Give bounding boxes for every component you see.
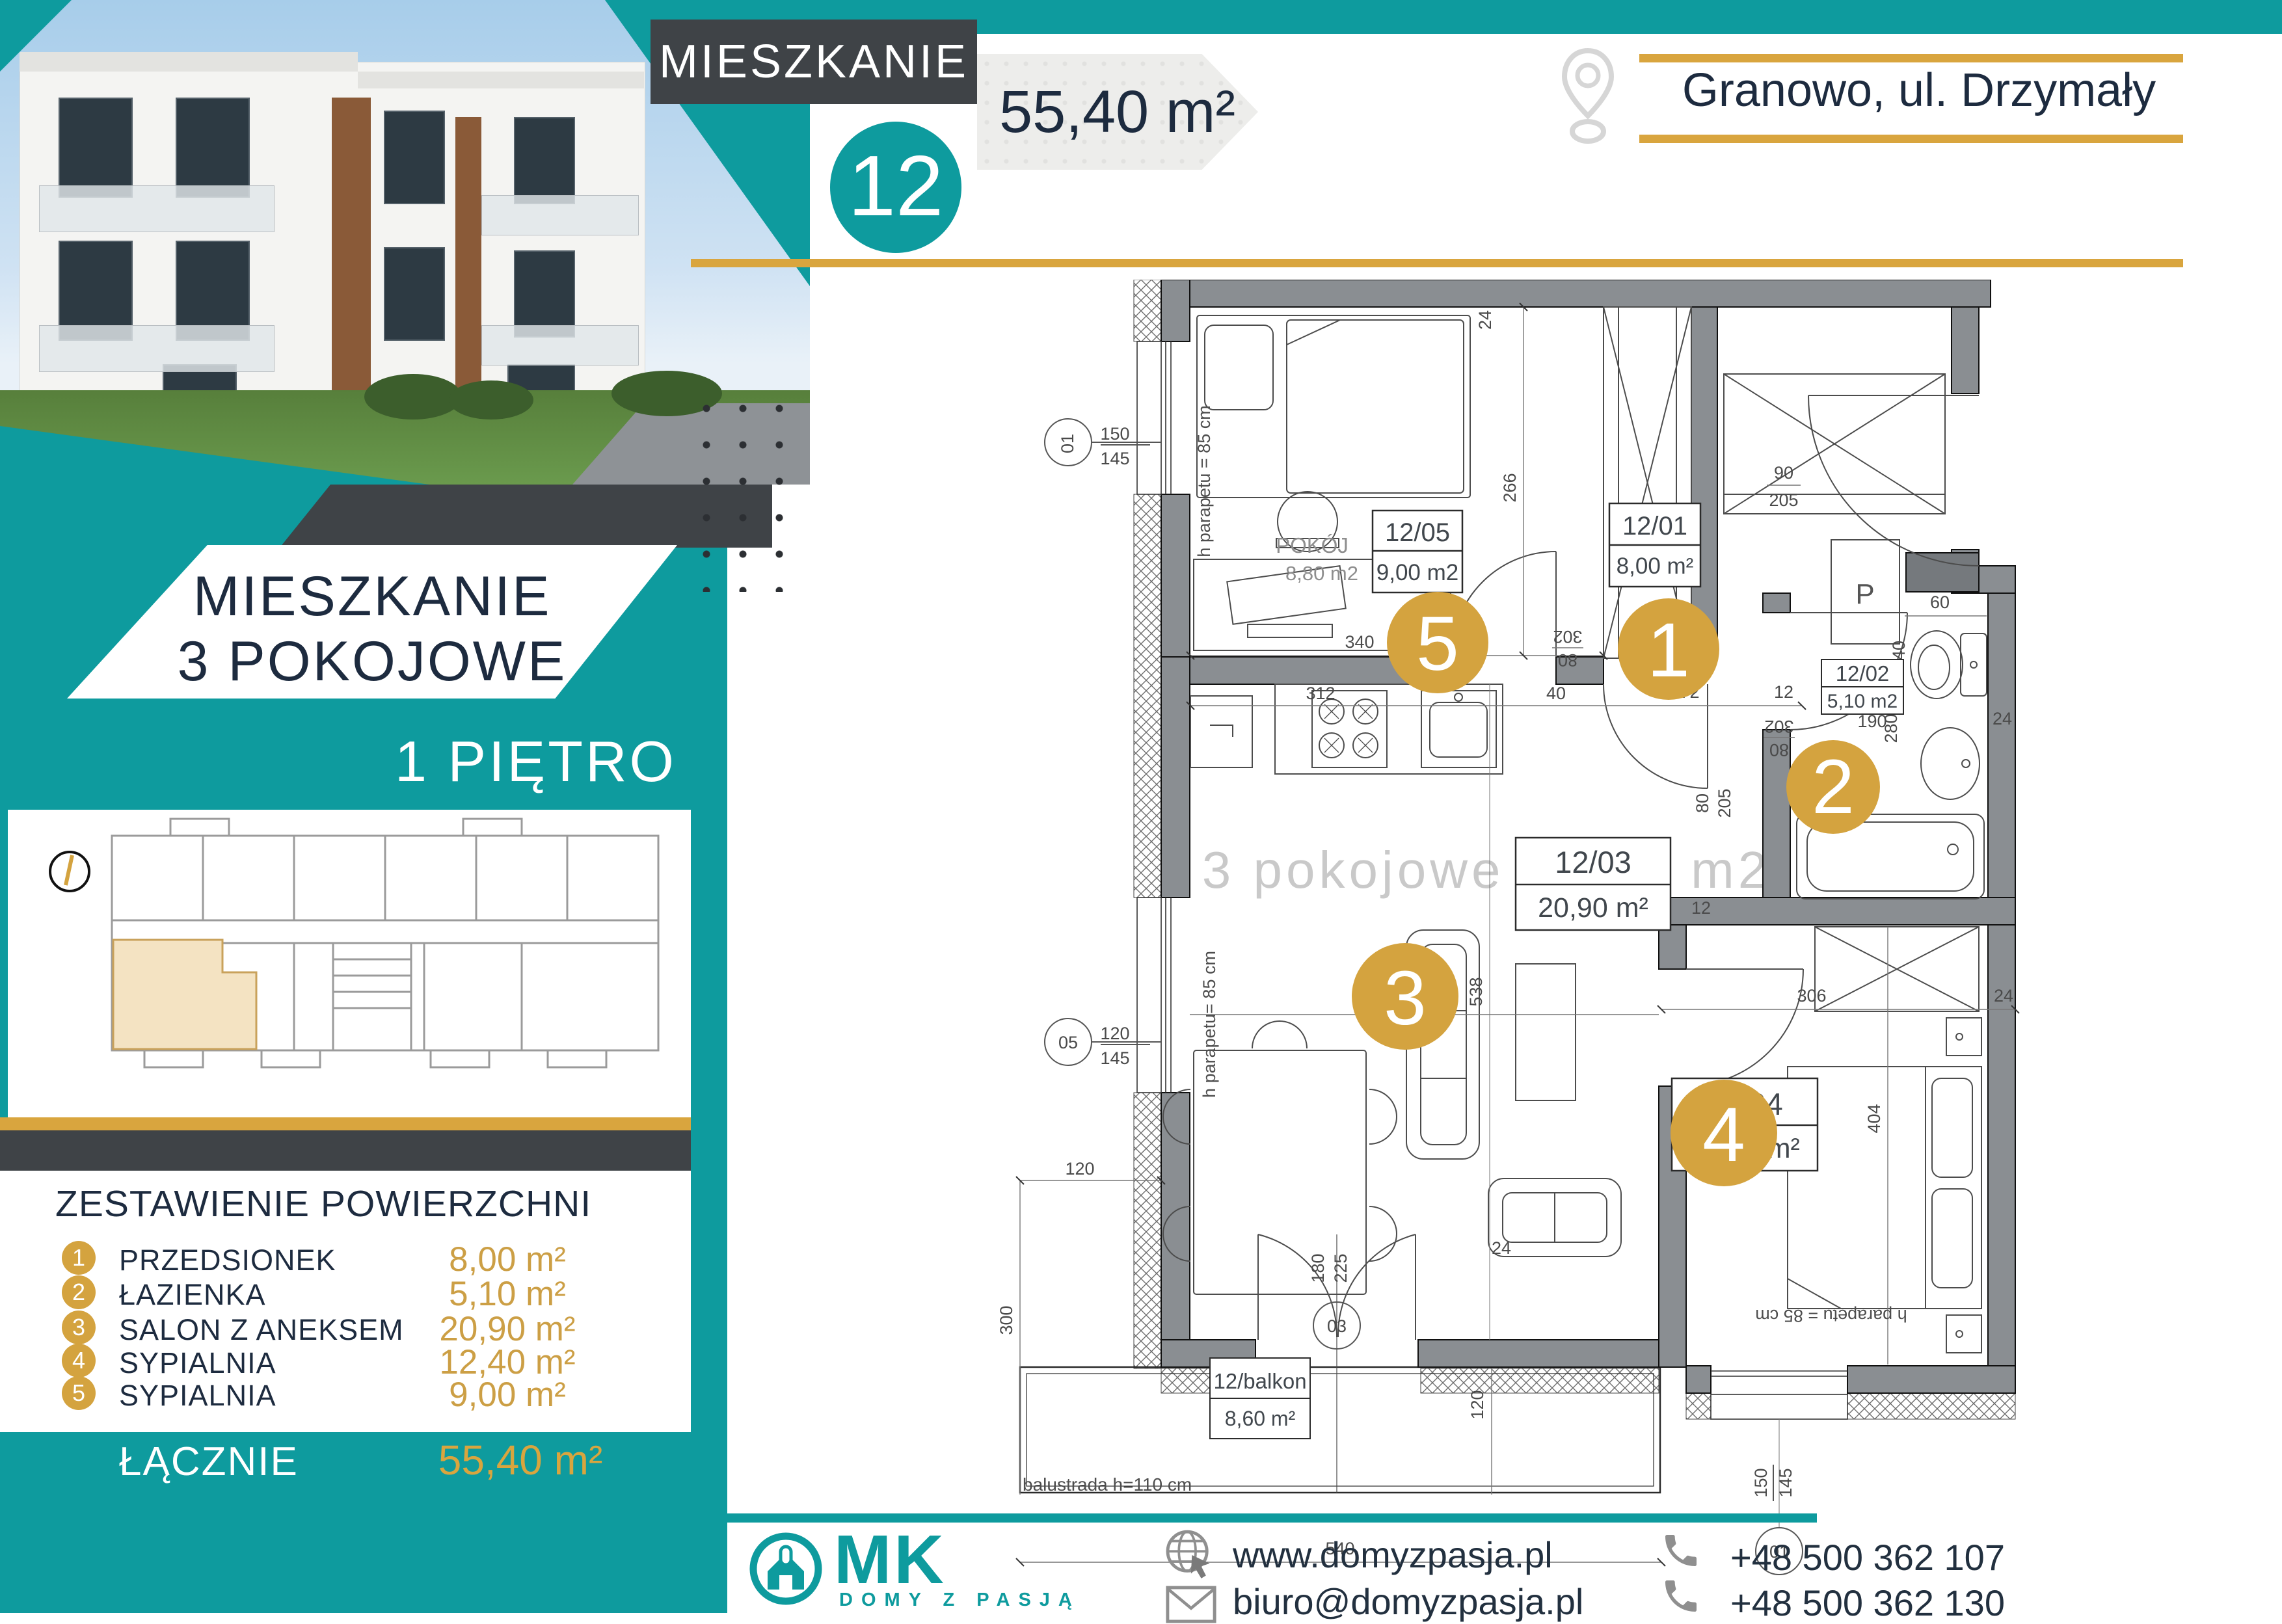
label-12-02: 12/02 5,10 m2	[1821, 659, 1903, 714]
plan-watermark: 3 pokojowe 55,40 m2	[1202, 841, 1771, 899]
room-area: 9,00 m²	[403, 1375, 611, 1415]
mk-logo-icon	[747, 1530, 825, 1608]
axis-label: 03	[1327, 1316, 1347, 1336]
room-area: 20,90 m²	[1538, 892, 1648, 924]
furniture	[1163, 307, 1987, 1353]
dim: 225	[1331, 1253, 1350, 1283]
dim: 40	[1889, 641, 1909, 660]
room-number-badge: 5	[62, 1376, 96, 1410]
room-name: SYPIALNIA	[119, 1346, 276, 1380]
dim: 180	[1308, 1253, 1328, 1283]
floor-plan: 3 pokojowe 55,40 m2	[995, 280, 2153, 1600]
dim: 24	[1993, 709, 2012, 728]
floor-overview-plan	[8, 810, 691, 1117]
dim: 80	[1769, 740, 1789, 760]
parapet-note: h parapetu = 85 cm	[1755, 1306, 1907, 1325]
dim: 280	[1881, 713, 1901, 743]
room-area: 9,00 m2	[1376, 560, 1458, 585]
gold-line-bottom	[1639, 135, 2183, 143]
dim: 300	[997, 1305, 1016, 1335]
website-globe-icon	[1161, 1527, 1217, 1583]
website-link[interactable]: www.domyzpasja.pl	[1233, 1534, 1553, 1576]
dim: 90	[1774, 463, 1793, 483]
dim: 120	[1468, 1390, 1487, 1419]
apartment-area: 55,40 m²	[999, 54, 1258, 170]
dim: 205	[1769, 490, 1798, 510]
balcony-id: 12/balkon	[1213, 1369, 1306, 1393]
hedge	[364, 374, 462, 419]
area-arrow: 55,40 m²	[977, 54, 1258, 170]
phone-number-2[interactable]: +48 500 362 130	[1730, 1582, 2005, 1624]
dim: 40	[1546, 684, 1566, 703]
dim: 120	[1065, 1159, 1094, 1178]
room-id: 12/03	[1555, 845, 1631, 879]
brochure-page: { "header": { "label": "MIESZKANIE", "nu…	[0, 0, 2282, 1613]
badge-3: 3	[1384, 955, 1427, 1041]
dim: 404	[1864, 1104, 1884, 1133]
dim: 12	[1774, 682, 1793, 702]
charcoal-stripe	[0, 1130, 691, 1171]
label-12-03: 12/03 20,90 m²	[1516, 838, 1671, 930]
dim: 145	[1776, 1468, 1795, 1497]
room-name: ŁAZIENKA	[119, 1278, 266, 1312]
dim: 340	[1345, 632, 1374, 652]
dim: 312	[1306, 684, 1335, 703]
label-12-05: 12/05 9,00 m2	[1373, 511, 1462, 592]
washer-label: P	[1855, 578, 1874, 610]
dim: 24	[1492, 1238, 1511, 1258]
window	[514, 250, 575, 338]
balcony	[481, 325, 639, 366]
floor-plan-svg: 3 pokojowe 55,40 m2	[995, 280, 2153, 1600]
summary-row: 2 ŁAZIENKA 5,10 m²	[0, 1275, 691, 1311]
room-number-badge: 3	[62, 1311, 96, 1344]
label-balkon: 12/balkon 8,60 m²	[1210, 1358, 1310, 1439]
dim: 12	[1691, 898, 1711, 918]
walls	[1161, 280, 2015, 1393]
dim: 302	[1764, 717, 1793, 736]
phone-icon	[1660, 1530, 1702, 1571]
axis-label: 05	[1058, 1033, 1078, 1052]
room-number-badge: 2	[62, 1275, 96, 1309]
phone-icon	[1660, 1575, 1702, 1617]
hedge	[449, 380, 533, 419]
total-area: 55,40 m²	[410, 1436, 631, 1484]
dim: 80	[1558, 650, 1577, 670]
dim: 145	[1100, 449, 1129, 468]
dim: 306	[1797, 986, 1826, 1005]
window	[176, 98, 250, 198]
badge-4: 4	[1702, 1092, 1745, 1178]
summary-row: 3 SALON Z ANEKSEM 20,90 m²	[0, 1311, 691, 1346]
top-teal-strip	[810, 0, 2282, 34]
room-number-badge: 4	[62, 1344, 96, 1378]
dim: 80	[1693, 793, 1712, 813]
dim: 205	[1715, 788, 1734, 818]
label-12-01: 12/01 8,00 m²	[1609, 503, 1700, 587]
balcony	[39, 185, 275, 232]
dim: 24	[1994, 986, 2013, 1005]
room-id: 12/05	[1385, 518, 1450, 547]
summary-row: 4 SYPIALNIA 12,40 m²	[0, 1344, 691, 1379]
dim: 150	[1751, 1468, 1771, 1497]
dim: 60	[1930, 592, 1950, 612]
balustrade-note: balustrada h=110 cm	[1023, 1474, 1192, 1495]
badge-1: 1	[1647, 607, 1690, 693]
total-label: ŁĄCZNIE	[119, 1439, 299, 1485]
gold-divider	[691, 259, 2183, 267]
room-name: SYPIALNIA	[119, 1379, 276, 1413]
email-link[interactable]: biuro@domyzpasja.pl	[1233, 1580, 1583, 1623]
phone-number-1[interactable]: +48 500 362 107	[1730, 1536, 2005, 1578]
building-roof2	[358, 72, 644, 88]
summary-row: 5 SYPIALNIA 9,00 m²	[0, 1376, 691, 1411]
dim: 150	[1100, 424, 1129, 444]
dim: 266	[1500, 473, 1520, 502]
apartment-label: MIESZKANIE	[651, 20, 977, 104]
floor-overview-svg	[8, 810, 691, 1117]
dots-decor	[688, 390, 807, 592]
balcony	[481, 195, 639, 235]
room-name: PRZEDSIONEK	[119, 1244, 336, 1277]
room-area: 8,00 m²	[403, 1240, 611, 1279]
window	[59, 98, 133, 198]
room5-name: POKÓJ	[1276, 533, 1349, 557]
window	[514, 117, 575, 204]
dim: 24	[1475, 310, 1495, 330]
axis-label: 01	[1058, 434, 1077, 453]
summary-row: 1 PRZEDSIONEK 8,00 m²	[0, 1241, 691, 1276]
building-roof	[20, 52, 358, 72]
location-pin-icon	[1557, 47, 1619, 146]
email-icon	[1166, 1586, 1216, 1623]
area-summary-title: ZESTAWIENIE POWIERZCHNI	[55, 1182, 591, 1225]
highlighted-apartment	[113, 940, 256, 1049]
badge-5: 5	[1416, 601, 1459, 687]
dim: 120	[1100, 1024, 1129, 1043]
parapet-note: h parapetu= 85 cm	[1200, 951, 1219, 1098]
room-area: 5,10 m2	[1827, 691, 1898, 712]
wood-panel	[455, 117, 481, 410]
balcony	[39, 325, 275, 372]
room-id: 12/02	[1836, 661, 1890, 686]
floor-label: 1 PIĘTRO	[351, 728, 677, 795]
balcony-area: 8,60 m²	[1225, 1407, 1296, 1430]
brand-name: MK	[834, 1521, 946, 1599]
parapet-note: h parapetu = 85 cm	[1194, 405, 1214, 557]
window	[384, 111, 445, 204]
dim: 302	[1553, 627, 1582, 646]
apartment-number-badge: 12	[830, 122, 961, 253]
dim: 538	[1466, 977, 1486, 1006]
room-number-badge: 1	[62, 1241, 96, 1275]
badge-2: 2	[1812, 744, 1855, 830]
room5-area-gray: 8,80 m2	[1285, 562, 1358, 585]
window	[384, 247, 445, 341]
apartment-label-box: MIESZKANIE	[651, 20, 977, 104]
room-area: 5,10 m²	[403, 1274, 611, 1314]
room-id: 12/01	[1622, 512, 1687, 540]
dim: 145	[1100, 1048, 1129, 1068]
brand-tagline: DOMY Z PASJĄ	[839, 1590, 1081, 1611]
room-name: SALON Z ANEKSEM	[119, 1313, 404, 1347]
wood-panel	[332, 98, 371, 410]
location-text: Granowo, ul. Drzymały	[1652, 64, 2186, 117]
gold-stripe	[0, 1117, 691, 1130]
gold-line-top	[1639, 54, 2183, 62]
room-area: 8,00 m²	[1617, 553, 1694, 579]
